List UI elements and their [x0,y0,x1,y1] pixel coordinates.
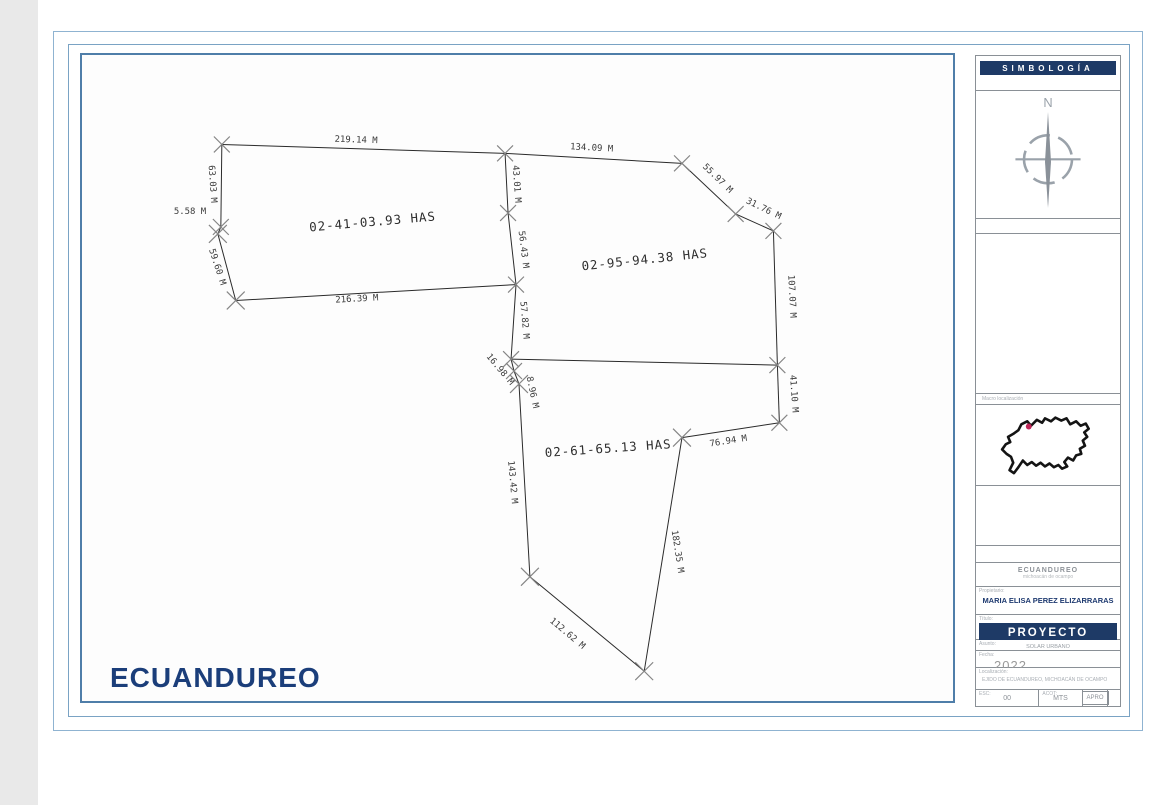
drawing-area: 219.14 M 134.09 M 55.97 M 31.76 M 107.07… [80,53,955,703]
project-label: Título: [979,616,993,622]
symbology-header-box: SIMBOLOGÍA [976,56,1120,91]
subject-row: Asunto: SOLAR URBANO [976,640,1120,651]
vertex-marker [728,206,744,222]
edge-13409 [505,153,682,163]
vertex-marker [209,225,227,243]
subject-value: SOLAR URBANO [976,644,1120,650]
org-subtitle: michoacán de ocampo [976,574,1120,580]
vertex-marker [635,662,653,680]
edge-shared-p2-p3 [511,359,777,365]
measurement-label: 219.14 M [334,135,377,146]
location-dot [1026,424,1032,430]
date-label: Fecha: [979,652,994,658]
org-name: ECUANDUREO [976,567,1120,574]
north-arrow-icon: N [1005,95,1091,215]
measurement-label: 57.82 M [517,301,530,339]
survey-plan-svg: 219.14 M 134.09 M 55.97 M 31.76 M 107.07… [82,55,953,701]
vertex-marker [673,429,691,447]
measurement-label: 8.96 M [524,376,540,410]
owner-box: Propietario: MARIA ELISA PEREZ ELIZARRAR… [976,587,1120,615]
empty-legend-box [976,234,1120,394]
location-row: Localización: EJIDO DE ECUANDUREO, MICHO… [976,668,1120,690]
measurement-label: 134.09 M [570,142,614,154]
units-label: ACOT: [1042,691,1057,697]
compass-needle [1045,112,1051,208]
area-label-parcel-2: 02-95-94.38 HAS [581,245,709,273]
page-margin-strip [0,0,38,805]
year-row: Fecha: 2022 [976,651,1120,668]
measurement-label: 107.07 M [785,275,797,319]
parcel-boundaries [218,144,780,671]
michoacan-outline [1002,418,1089,474]
edge-11262 [530,577,644,671]
measurement-label: 216.39 M [335,293,379,305]
empty-detail-box [976,486,1120,546]
scale-value: 00 [1003,695,1011,702]
owner-name: MARIA ELISA PEREZ ELIZARRARAS [976,596,1120,605]
spacer-row-2 [976,546,1120,563]
north-arrow-box: N [976,91,1120,219]
vertex-markers [209,136,787,680]
measurement-label: 112.62 M [547,616,586,651]
project-box: Título: PROYECTO [976,615,1120,640]
measurement-labels: 219.14 M 134.09 M 55.97 M 31.76 M 107.07… [174,135,800,652]
units-cell: ACOT: MTS [1039,690,1082,706]
measurement-label: 182.35 M [669,530,686,574]
map-caption-row: Macro localización [976,394,1120,405]
symbology-header: SIMBOLOGÍA [980,61,1116,75]
scale-row: ESC: 00 ACOT: MTS APRO [976,690,1120,706]
measurement-label: 43.01 M [510,165,523,203]
north-label: N [1043,95,1052,110]
spacer-row-1 [976,219,1120,234]
michoacan-map-icon [985,408,1111,482]
measurement-label: 41.10 M [787,375,800,413]
location-label: Localización: [979,669,1008,675]
edge-21914 [222,144,505,153]
approval-value: APRO [1082,691,1109,705]
measurement-label: 56.43 M [516,230,531,269]
measurement-label: 76.94 M [709,434,748,450]
measurement-label: 31.76 M [744,196,782,222]
locator-map-box [976,405,1120,486]
approval-cell: APRO [1083,690,1109,706]
owner-label: Propietario: [979,588,1005,594]
area-label-parcel-1: 02-41-03.93 HAS [309,208,437,234]
scale-label: ESC: [979,691,991,697]
measurement-label: 59.60 M [206,248,227,287]
subject-label: Asunto: [979,641,996,647]
parcel-area-labels: 02-41-03.93 HAS 02-95-94.38 HAS 02-61-65… [309,208,709,460]
edge-10707 [773,231,777,365]
map-caption: Macro localización [982,396,1120,402]
measurement-label: 143.42 M [505,460,519,504]
area-label-parcel-3: 02-61-65.13 HAS [544,436,672,460]
measurement-label: 55.97 M [700,162,734,195]
empty-cell [1108,690,1120,706]
measurement-label: 5.58 M [174,207,206,217]
scale-cell: ESC: 00 [976,690,1039,706]
org-box: ECUANDUREO michoacán de ocampo [976,563,1120,587]
measurement-label: 63.03 M [206,165,219,203]
edge-4110 [777,365,779,423]
location-value: EJIDO DE ECUANDUREO, MICHOACÁN DE OCAMPO [982,677,1116,683]
sidebar: SIMBOLOGÍA N Macro localización ECUANDUR… [975,55,1121,707]
edge-5597-3176 [682,163,773,231]
plan-title: ECUANDUREO [110,662,321,694]
